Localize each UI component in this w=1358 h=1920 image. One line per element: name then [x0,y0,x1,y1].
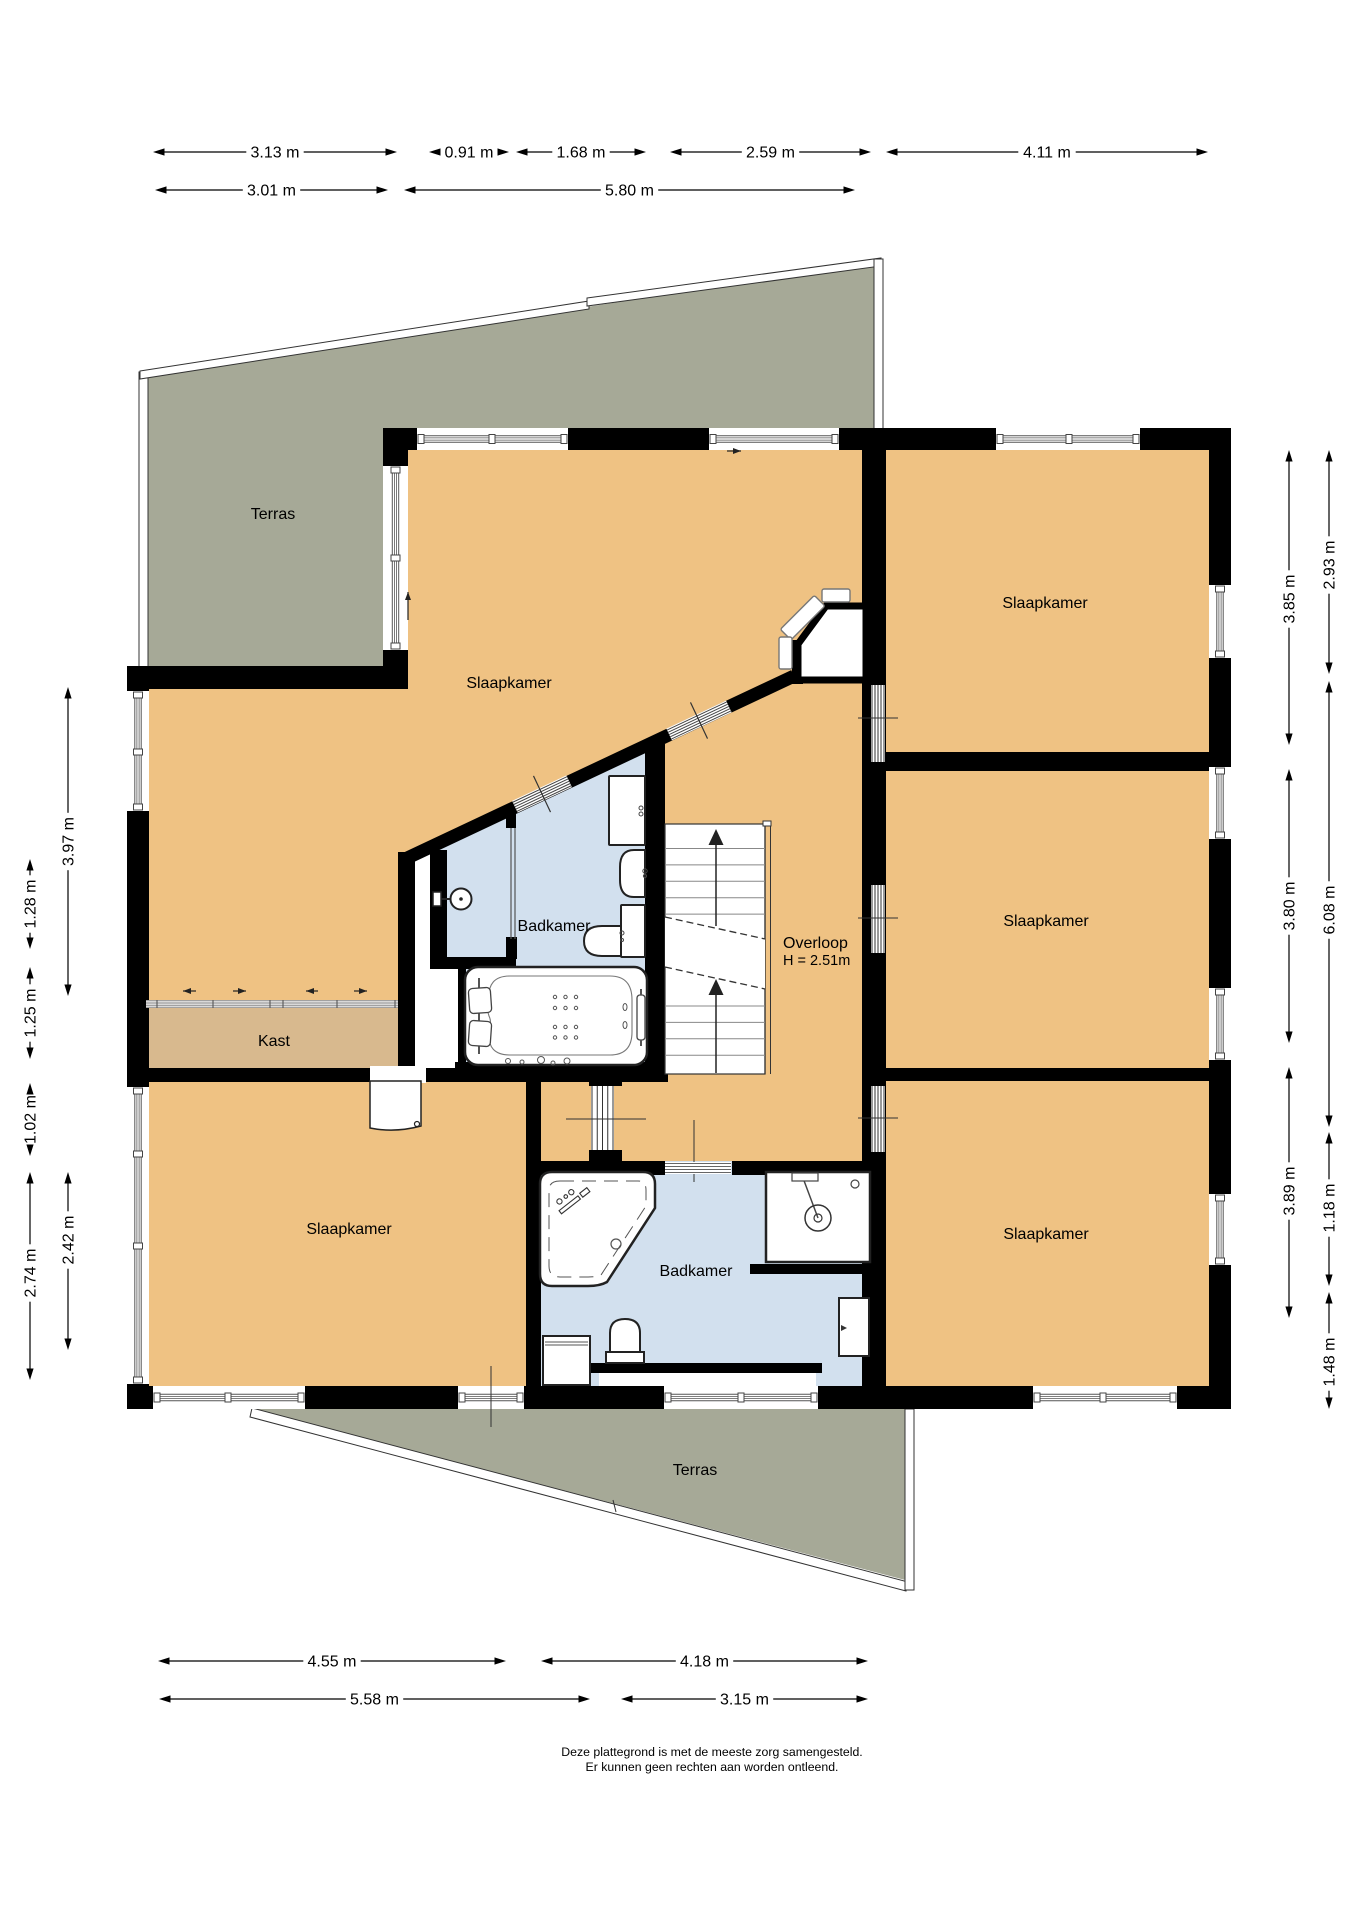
svg-text:Kast: Kast [258,1033,291,1050]
svg-text:3.89 m: 3.89 m [1282,1167,1299,1216]
svg-text:2.74 m: 2.74 m [23,1249,40,1298]
svg-text:1.18 m: 1.18 m [1322,1184,1339,1233]
svg-text:5.80 m: 5.80 m [605,183,654,200]
svg-text:1.48 m: 1.48 m [1322,1338,1339,1387]
svg-text:4.18 m: 4.18 m [680,1654,729,1671]
svg-text:Slaapkamer: Slaapkamer [1003,913,1089,930]
svg-text:2.93 m: 2.93 m [1322,541,1339,590]
svg-text:2.42 m: 2.42 m [61,1216,78,1265]
svg-text:1.25 m: 1.25 m [23,989,40,1038]
svg-text:2.59 m: 2.59 m [746,145,795,162]
svg-text:Deze plattegrond is met de mee: Deze plattegrond is met de meeste zorg s… [561,1745,862,1759]
svg-text:0.91 m: 0.91 m [445,145,494,162]
svg-text:Badkamer: Badkamer [660,1263,734,1280]
svg-text:4.11 m: 4.11 m [1023,145,1071,162]
svg-text:3.80 m: 3.80 m [1282,882,1299,931]
svg-text:3.01 m: 3.01 m [247,183,296,200]
svg-text:3.85 m: 3.85 m [1282,575,1299,624]
svg-text:3.15 m: 3.15 m [720,1692,769,1709]
svg-text:Slaapkamer: Slaapkamer [466,675,552,692]
svg-text:1.28 m: 1.28 m [23,880,40,929]
svg-text:Er kunnen geen rechten aan wor: Er kunnen geen rechten aan worden ontlee… [586,1760,839,1774]
svg-text:Slaapkamer: Slaapkamer [1002,595,1088,612]
svg-text:4.55 m: 4.55 m [308,1654,357,1671]
svg-text:6.08 m: 6.08 m [1322,886,1339,935]
svg-text:Slaapkamer: Slaapkamer [1003,1226,1089,1243]
svg-text:Terras: Terras [251,506,295,523]
svg-text:Terras: Terras [673,1462,717,1479]
svg-text:1.68 m: 1.68 m [557,145,606,162]
svg-text:H = 2.51m: H = 2.51m [783,953,850,969]
svg-text:1.02 m: 1.02 m [23,1095,40,1144]
svg-text:Slaapkamer: Slaapkamer [306,1221,392,1238]
svg-text:3.13 m: 3.13 m [251,145,300,162]
svg-text:3.97 m: 3.97 m [61,817,78,866]
svg-text:5.58 m: 5.58 m [350,1692,399,1709]
svg-text:Badkamer: Badkamer [518,918,592,935]
svg-text:Overloop: Overloop [783,935,848,952]
